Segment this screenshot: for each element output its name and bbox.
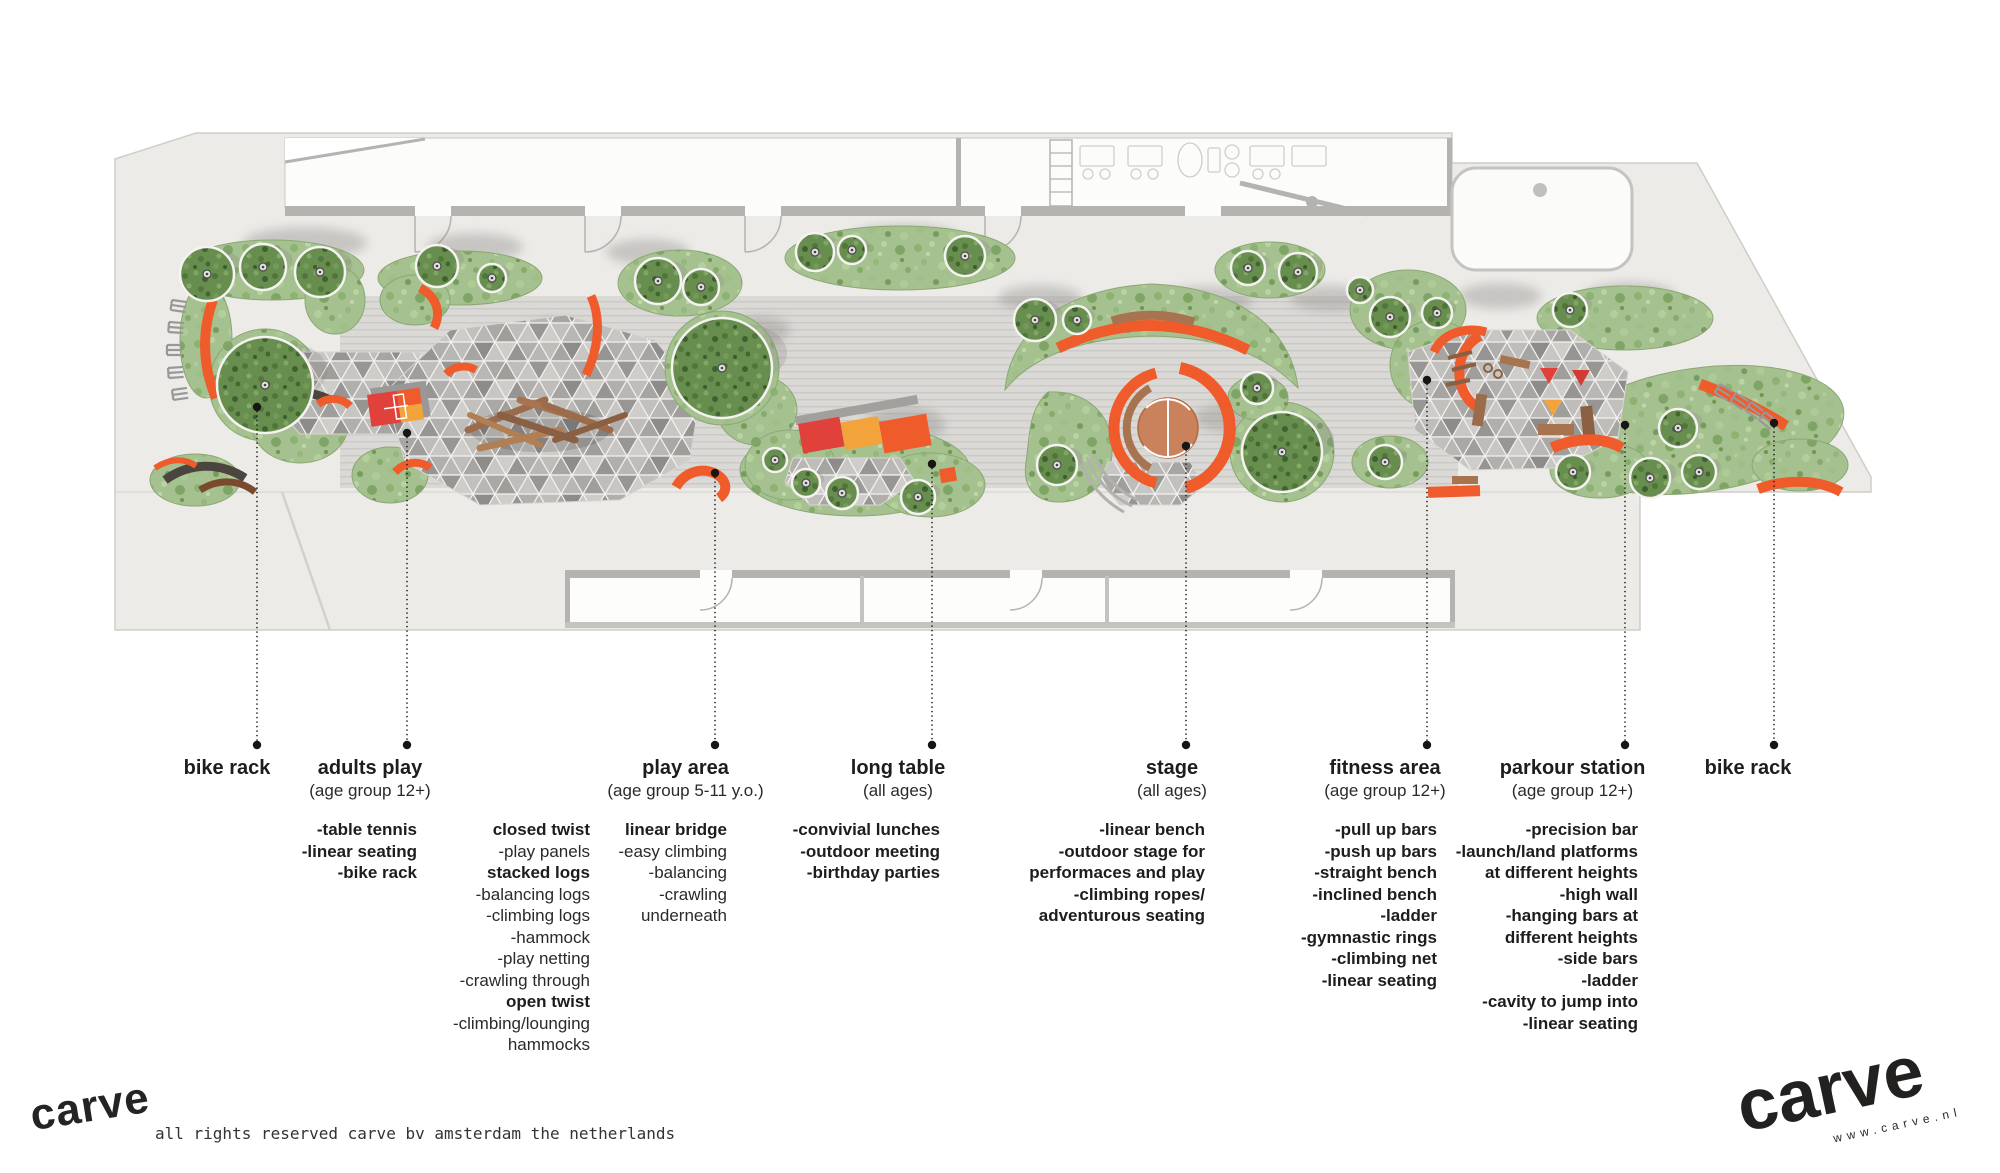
- callout-title: stage: [1082, 757, 1262, 780]
- callout-list-line: -convivial lunches: [790, 819, 940, 841]
- callout-fitness-area: fitness area (age group 12+): [1295, 757, 1475, 801]
- callout-list-line: different heights: [1446, 927, 1638, 949]
- callout-list-line: -cavity to jump into: [1446, 991, 1638, 1013]
- callout-list-line: -easy climbing: [597, 841, 727, 863]
- callout-list-line: performaces and play: [1015, 862, 1205, 884]
- callout-list-line: underneath: [597, 905, 727, 927]
- callout-list-line: -outdoor meeting: [790, 841, 940, 863]
- callout-list-line: linear bridge: [597, 819, 727, 841]
- callout-title: fitness area: [1295, 757, 1475, 780]
- callout-list-line: -outdoor stage for: [1015, 841, 1205, 863]
- callout-subtitle: (all ages): [808, 780, 988, 801]
- callout-list-line: -gymnastic rings: [1287, 927, 1437, 949]
- callout-list-line: -linear bench: [1015, 819, 1205, 841]
- site-plan-drawing: [0, 0, 2000, 1173]
- callout-list-line: -crawling through: [435, 970, 590, 992]
- callout-long-table: long table (all ages): [808, 757, 988, 801]
- callout-list-line: -inclined bench: [1287, 884, 1437, 906]
- callout-subtitle: (age group 12+): [1480, 780, 1665, 801]
- callout-list-line: adventurous seating: [1015, 905, 1205, 927]
- callout-title: bike rack: [1658, 757, 1838, 780]
- callout-list-line: -table tennis: [257, 819, 417, 841]
- callout-title: long table: [808, 757, 988, 780]
- callout-title: parkour station: [1480, 757, 1665, 780]
- callout-list-line: -balancing logs: [435, 884, 590, 906]
- callout-list-line: -push up bars: [1287, 841, 1437, 863]
- callout-parkour-station: parkour station (age group 12+): [1480, 757, 1665, 801]
- callout-list-line: -precision bar: [1446, 819, 1638, 841]
- callout-list-line: hammocks: [435, 1034, 590, 1056]
- callout-list-stage: -linear bench-outdoor stage forperformac…: [1015, 819, 1205, 927]
- callout-list-fitness-area: -pull up bars-push up bars-straight benc…: [1287, 819, 1437, 991]
- callout-list-line: stacked logs: [435, 862, 590, 884]
- copyright-text: all rights reserved carve bv amsterdam t…: [155, 1124, 675, 1143]
- callout-play-area: play area (age group 5-11 y.o.): [593, 757, 778, 801]
- callout-title: play area: [593, 757, 778, 780]
- page: bike rack adults play (age group 12+) -t…: [0, 0, 2000, 1173]
- callout-list-line: -linear seating: [1287, 970, 1437, 992]
- callout-subtitle: (age group 5-11 y.o.): [593, 780, 778, 801]
- callout-subtitle: (age group 12+): [280, 780, 460, 801]
- callout-list-long-table: -convivial lunches-outdoor meeting-birth…: [790, 819, 940, 884]
- callout-list-line: -crawling: [597, 884, 727, 906]
- callout-list-line: -play panels: [435, 841, 590, 863]
- callout-list-line: -high wall: [1446, 884, 1638, 906]
- callout-list-line: -linear seating: [1446, 1013, 1638, 1035]
- callout-list-line: -hammock: [435, 927, 590, 949]
- callout-list-line: -launch/land platforms: [1446, 841, 1638, 863]
- callout-list-line: -linear seating: [257, 841, 417, 863]
- callout-list-line: -side bars: [1446, 948, 1638, 970]
- callout-list-line: -ladder: [1287, 905, 1437, 927]
- callout-bike-rack-right: bike rack: [1658, 757, 1838, 780]
- callout-list-adults-play: -table tennis-linear seating-bike rack: [257, 819, 417, 884]
- callout-list-linear-bridge: linear bridge-easy climbing-balancing-cr…: [597, 819, 727, 927]
- callout-list-line: -climbing net: [1287, 948, 1437, 970]
- callout-list-line: -climbing/lounging: [435, 1013, 590, 1035]
- callout-list-line: -climbing logs: [435, 905, 590, 927]
- callout-list-line: at different heights: [1446, 862, 1638, 884]
- callout-list-parkour-station: -precision bar-launch/land platformsat d…: [1446, 819, 1638, 1034]
- callout-list-line: -birthday parties: [790, 862, 940, 884]
- callout-subtitle: (age group 12+): [1295, 780, 1475, 801]
- callout-list-line: -balancing: [597, 862, 727, 884]
- callout-subtitle: (all ages): [1082, 780, 1262, 801]
- callout-list-line: -straight bench: [1287, 862, 1437, 884]
- callout-list-line: open twist: [435, 991, 590, 1013]
- callout-list-line: -play netting: [435, 948, 590, 970]
- callout-adults-play: adults play (age group 12+): [280, 757, 460, 801]
- callout-list-line: -bike rack: [257, 862, 417, 884]
- callout-stage: stage (all ages): [1082, 757, 1262, 801]
- callout-list-line: -climbing ropes/: [1015, 884, 1205, 906]
- callout-title: adults play: [280, 757, 460, 780]
- callout-list-line: -ladder: [1446, 970, 1638, 992]
- callout-list-line: -hanging bars at: [1446, 905, 1638, 927]
- callout-list-closed-twist: closed twist-play panelsstacked logs-bal…: [435, 819, 590, 1056]
- callout-list-line: -pull up bars: [1287, 819, 1437, 841]
- callout-list-line: closed twist: [435, 819, 590, 841]
